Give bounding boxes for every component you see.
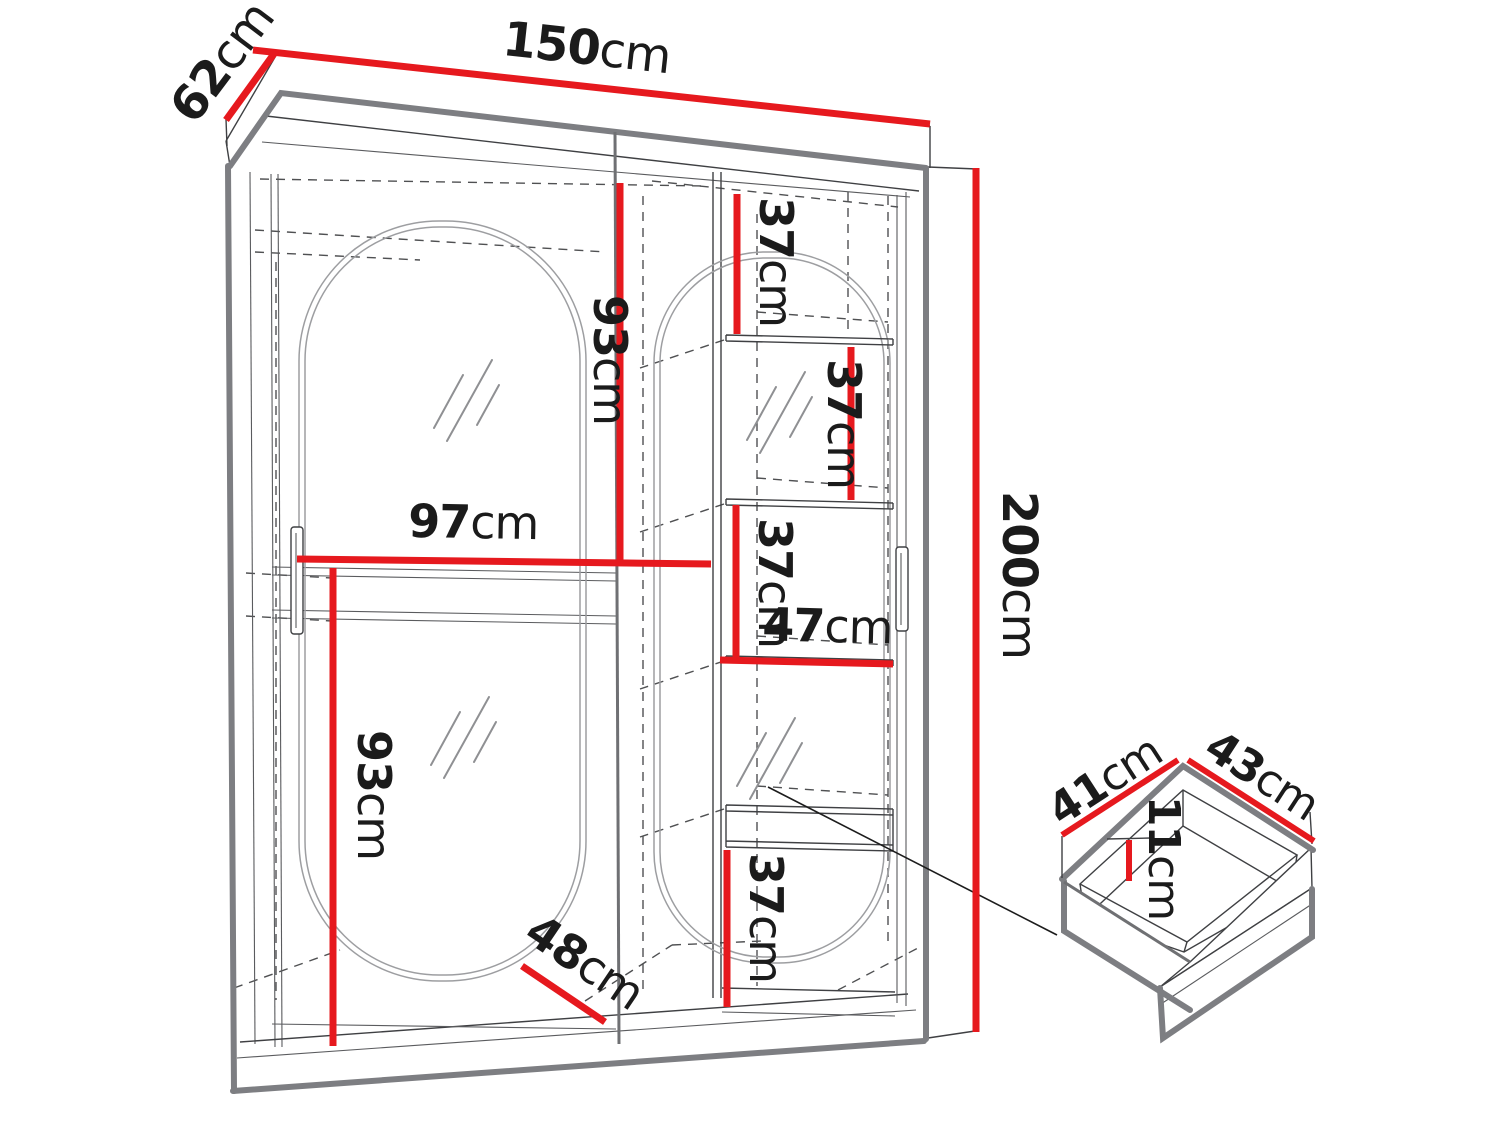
dim-lower-left-height-label: 93cm <box>347 730 401 860</box>
dim-right-width-label: 47cm <box>762 597 893 654</box>
dim-right-width-line <box>720 660 893 664</box>
bottom-outer-edge <box>233 1041 924 1091</box>
mirror-glint-lower-right <box>737 718 802 799</box>
dim-shelf-gap-1-label: 37cm <box>749 197 803 327</box>
shelf-4 <box>726 805 893 815</box>
wardrobe-dimension-diagram: 150cm 62cm 200cm 93cm 97cm 93cm 37cm 37c… <box>0 0 1500 1125</box>
diagram-canvas: 150cm 62cm 200cm 93cm 97cm 93cm 37cm 37c… <box>0 0 1500 1125</box>
dim-shelf-gap-2-label: 37cm <box>817 359 871 489</box>
right-floor <box>722 988 895 992</box>
door-mid-rail-upper <box>272 567 616 581</box>
dim-width-label: 150cm <box>500 11 673 85</box>
hidden-construction-lines <box>234 179 918 1001</box>
drawer-leader-line <box>768 787 1057 935</box>
left-door-handle <box>291 527 303 634</box>
dim-left-width-line <box>297 559 711 564</box>
left-outer-edge <box>228 166 234 1091</box>
shelf-2 <box>726 499 893 509</box>
left-door-mirror <box>299 221 586 981</box>
top-front-edge <box>230 93 926 168</box>
right-side-panel <box>928 167 977 1038</box>
dim-shelf-gap-4-label: 37cm <box>739 853 793 983</box>
right-door-handle <box>896 547 908 631</box>
dim-height-label: 200cm <box>991 491 1047 659</box>
dim-drawer-height-label: 11cm <box>1138 796 1189 920</box>
dim-floor-depth-label: 48cm <box>516 903 654 1021</box>
shelf-1 <box>726 335 893 345</box>
mirror-glint-upper-left <box>434 360 499 441</box>
drawer-front <box>726 811 893 851</box>
dim-left-width-label: 97cm <box>408 494 539 550</box>
door-mid-rail-lower <box>272 610 616 624</box>
dim-upper-left-height-label: 93cm <box>583 295 637 425</box>
mirror-glint-lower-left <box>431 697 496 778</box>
